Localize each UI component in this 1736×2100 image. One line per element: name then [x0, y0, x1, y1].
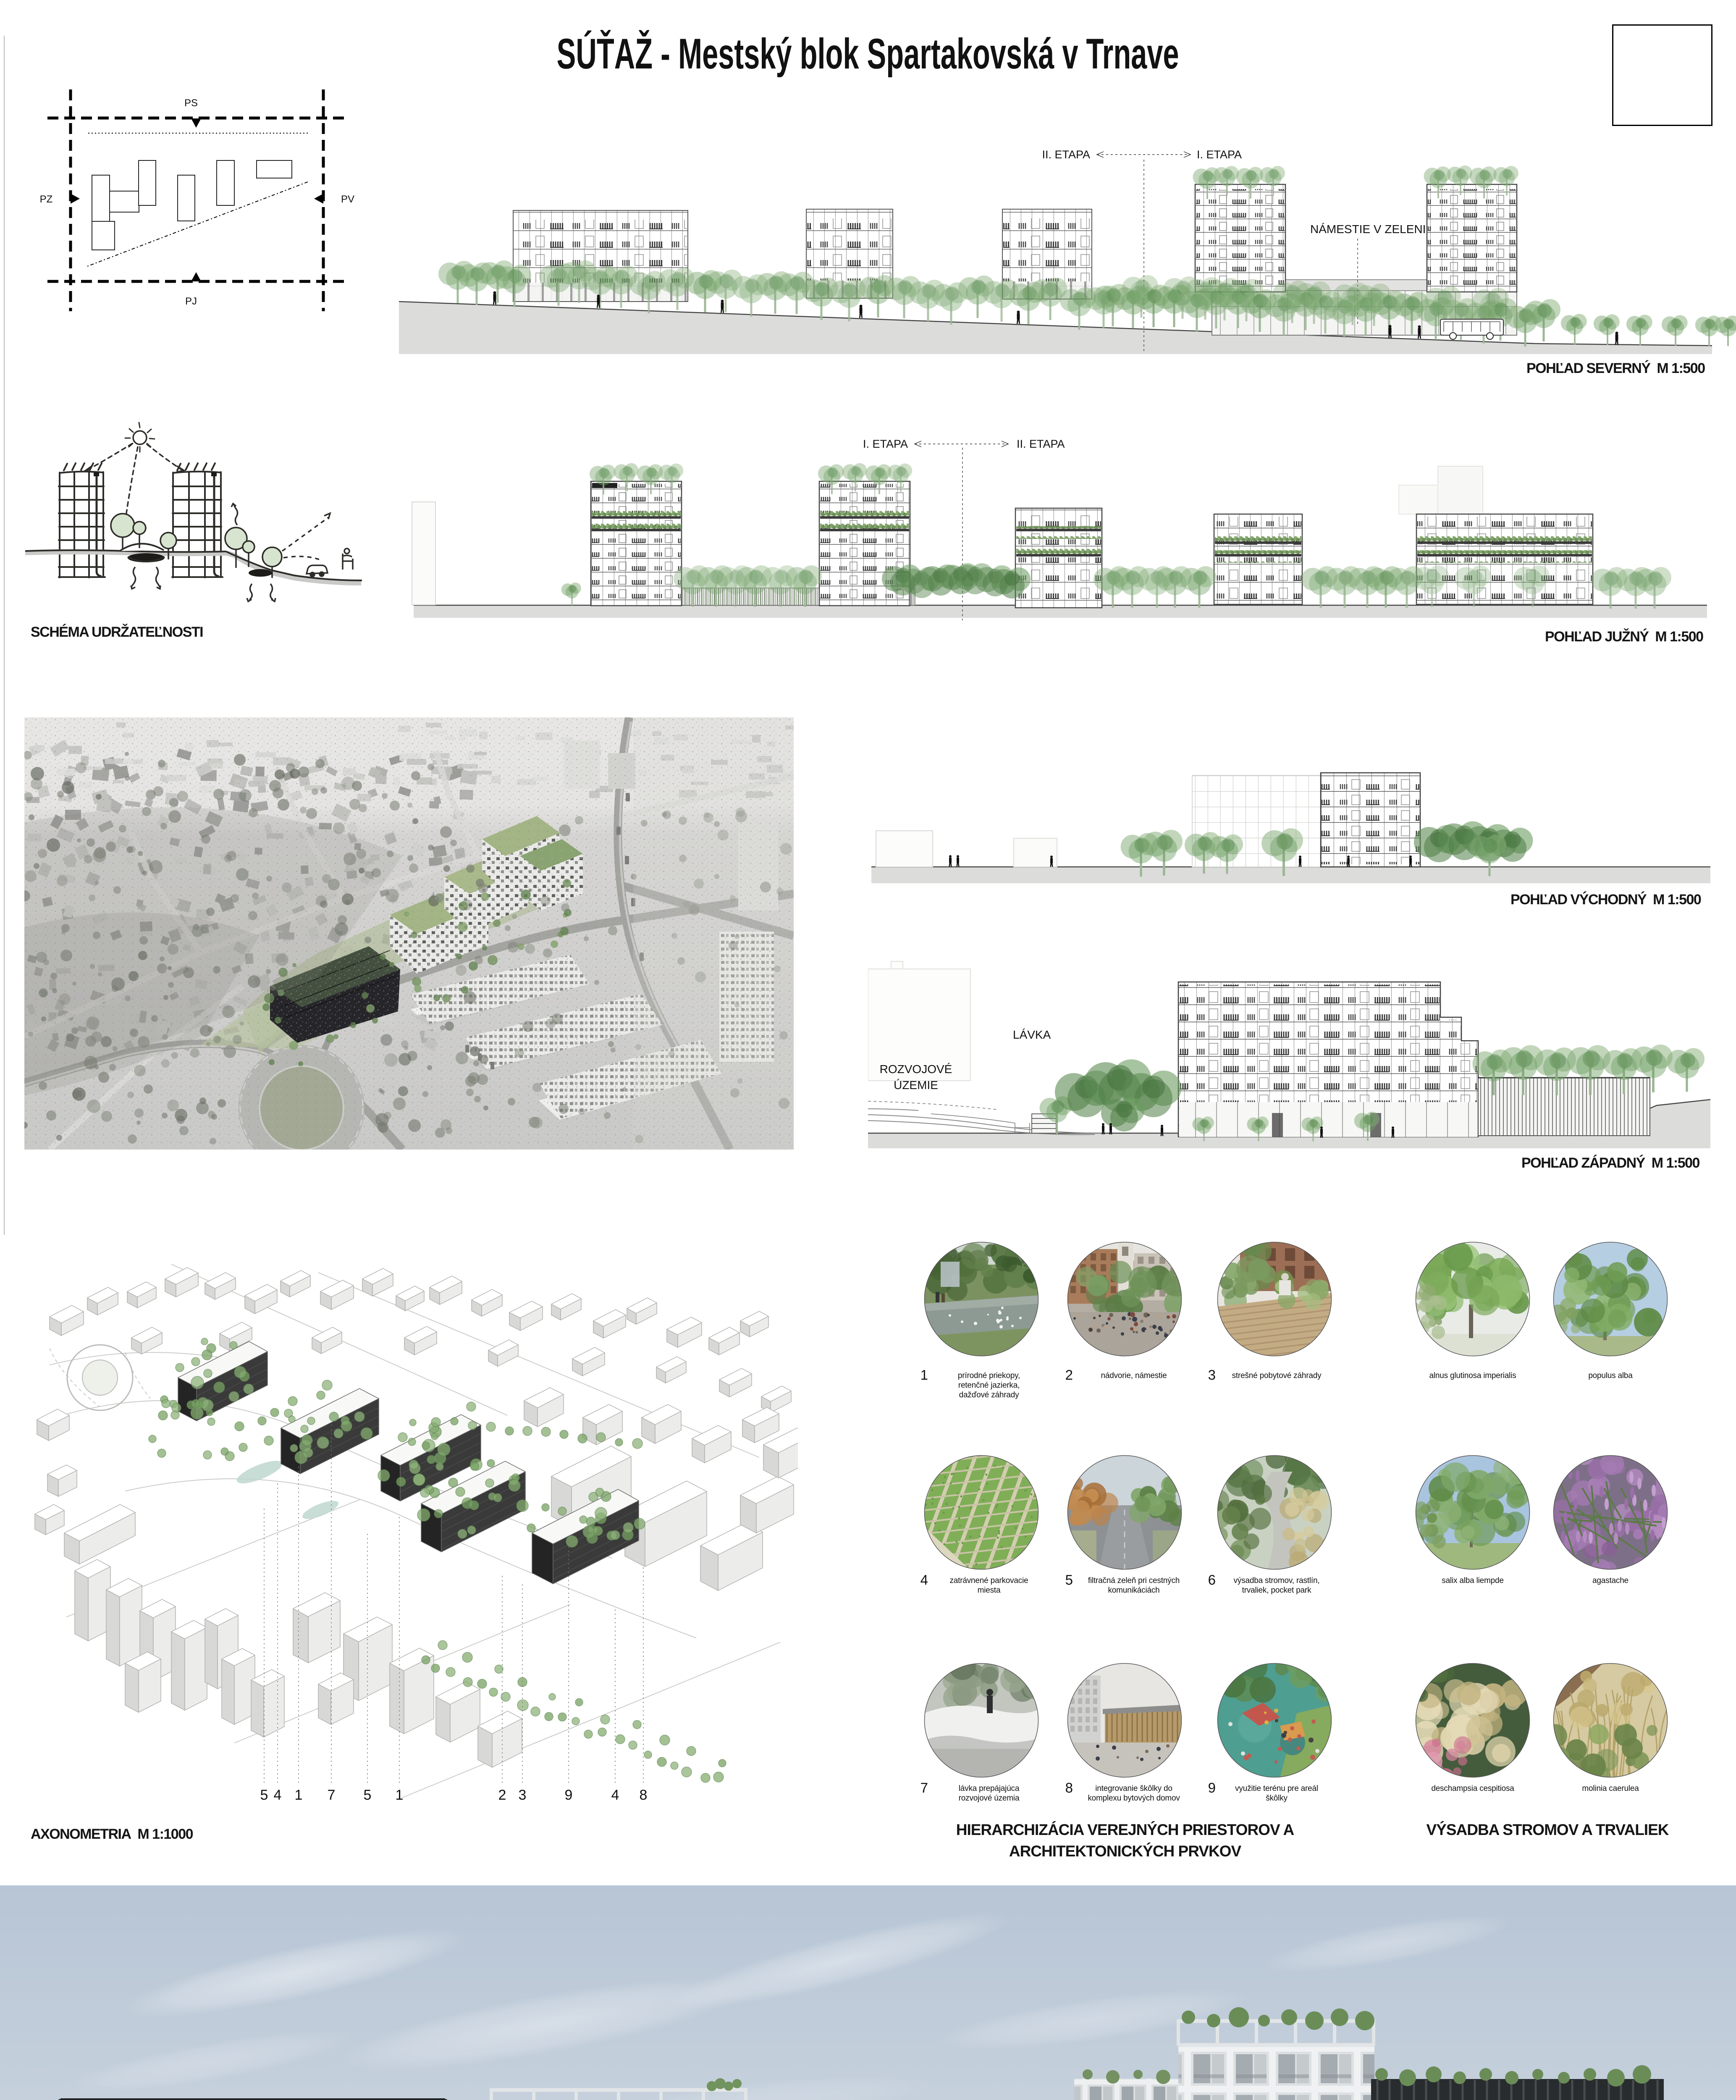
svg-text:9: 9	[565, 1787, 573, 1803]
svg-text:5: 5	[364, 1787, 372, 1803]
svg-text:PZ: PZ	[40, 194, 53, 205]
svg-text:1: 1	[396, 1787, 404, 1803]
svg-text:II. ETAPA: II. ETAPA	[1017, 438, 1065, 450]
svg-text:ROZVOJOVÉ: ROZVOJOVÉ	[880, 1063, 952, 1076]
svg-text:I. ETAPA: I. ETAPA	[1197, 148, 1242, 161]
svg-text:II. ETAPA: II. ETAPA	[1042, 148, 1090, 161]
svg-text:ÚZEMIE: ÚZEMIE	[894, 1079, 938, 1092]
svg-text:7: 7	[328, 1787, 336, 1803]
svg-text:PS: PS	[184, 97, 198, 109]
svg-text:5: 5	[260, 1787, 268, 1803]
svg-text:NÁMESTIE V ZELENI: NÁMESTIE V ZELENI	[1310, 223, 1426, 236]
svg-text:4: 4	[611, 1787, 619, 1803]
svg-text:I. ETAPA: I. ETAPA	[863, 438, 908, 450]
svg-text:3: 3	[519, 1787, 527, 1803]
svg-text:PV: PV	[341, 194, 354, 205]
svg-text:4: 4	[274, 1787, 282, 1803]
svg-text:1: 1	[295, 1787, 303, 1803]
svg-text:2: 2	[498, 1787, 506, 1803]
svg-text:PJ: PJ	[185, 296, 197, 307]
svg-text:8: 8	[640, 1787, 648, 1803]
svg-text:LÁVKA: LÁVKA	[1013, 1028, 1051, 1041]
